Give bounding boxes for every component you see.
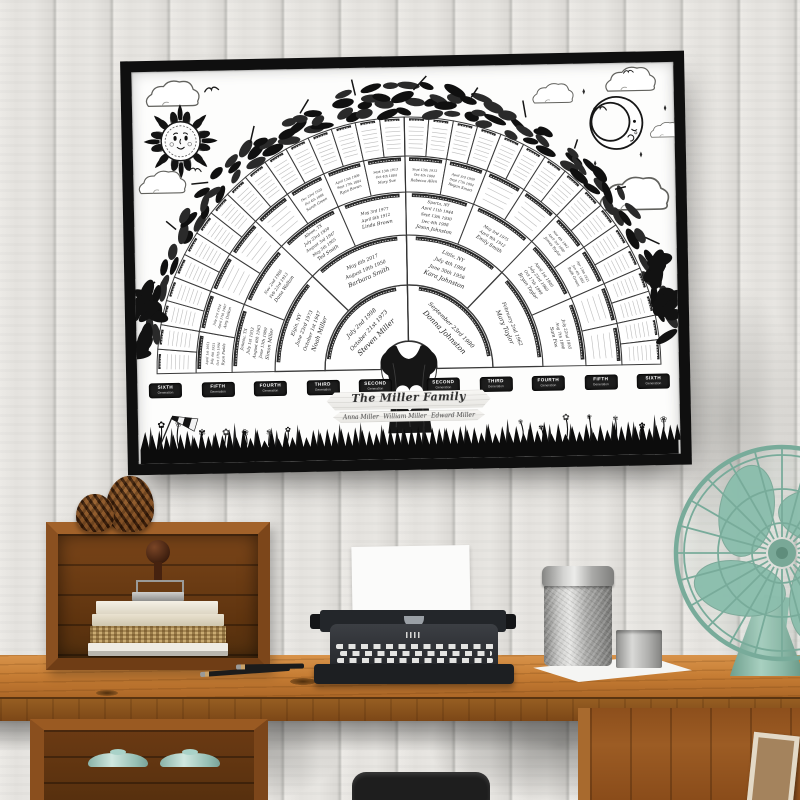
rubber-stamp-handle [146, 540, 170, 564]
badge-sublabel: Generation [307, 388, 339, 392]
flower-icon: ❀ [660, 415, 668, 425]
badge-sublabel: Generation [254, 389, 286, 393]
poster-frame: Steven MillerOctober 21st 1973July 2nd 1… [120, 51, 692, 476]
fan-cell [380, 117, 405, 157]
flower-icon: ❀ [586, 414, 591, 421]
under-desk-cabinet [30, 719, 268, 800]
wood-knot [290, 678, 316, 685]
cloud-icon [533, 83, 574, 103]
star-icon [582, 89, 585, 95]
typewriter-base [314, 664, 514, 684]
typewriter-keys [337, 658, 493, 663]
flower-icon: ❀ [241, 428, 249, 438]
child-name: Anna Miller [343, 411, 379, 423]
flower-icon: ✾ [198, 428, 206, 438]
badge-sublabel: Generation [149, 391, 181, 395]
desk-fan-cage [662, 441, 800, 681]
badge-sublabel: Generation [637, 381, 669, 385]
stool [352, 772, 490, 800]
leaning-picture-frame [746, 732, 800, 800]
badge-sublabel: Generation [585, 382, 617, 386]
mint-jar [162, 766, 218, 800]
fan-cell [582, 323, 622, 365]
rubber-stamp-stem [154, 562, 162, 582]
room-scene: Steven MillerOctober 21st 1973July 2nd 1… [0, 0, 800, 800]
generation-badge: FOURTHGeneration [254, 381, 286, 396]
framed-poster: Steven MillerOctober 21st 1973July 2nd 1… [120, 51, 692, 476]
flower-icon: ✾ [613, 415, 619, 423]
book [90, 626, 226, 643]
badge-sublabel: Generation [427, 385, 459, 389]
flower-icon: ✿ [562, 413, 570, 423]
badge-sublabel: Generation [202, 390, 234, 394]
fan-cell: Mary SueOct 4th 1884Sept 13th 1913 [363, 156, 405, 196]
book [88, 643, 228, 656]
flower-icon: ✾ [266, 427, 273, 437]
flower-icon: ✿ [285, 425, 291, 434]
generation-badge: FIFTHGeneration [585, 375, 617, 390]
pine-cone-large [106, 476, 154, 532]
bird-icon [189, 168, 201, 172]
generation-badge: FIFTHGeneration [202, 382, 234, 397]
badge-sublabel: Generation [480, 384, 512, 388]
typewriter-keys [340, 651, 492, 656]
fan-cell [620, 339, 660, 364]
flower-icon: ✿ [222, 427, 230, 438]
book [92, 614, 224, 626]
wood-knot [96, 690, 118, 696]
metal-cup [616, 630, 662, 668]
generation-badge: SIXTHGeneration [149, 383, 181, 398]
generation-badge: SIXTHGeneration [637, 374, 669, 389]
generation-badge: FOURTHGeneration [532, 376, 564, 391]
typewriter-logo [406, 632, 422, 638]
sun-icon [143, 104, 218, 179]
flower-icon: ❀ [518, 419, 523, 426]
star-icon [640, 151, 643, 157]
family-tree-poster: Steven MillerOctober 21st 1973July 2nd 1… [131, 62, 680, 464]
fan-hub-cap [776, 547, 788, 559]
child-name: Edward Miller [431, 409, 475, 421]
bird-icon [204, 86, 218, 91]
poster-title: The Miller Family [326, 389, 490, 410]
fan-chart: Steven MillerOctober 21st 1973July 2nd 1… [152, 112, 661, 374]
flower-icon: ✾ [538, 424, 544, 432]
cloud-icon [139, 171, 186, 194]
typewriter-keys [336, 644, 494, 649]
moon-icon [586, 92, 647, 153]
metal-canister [544, 584, 612, 666]
rubber-stamp-base [132, 592, 184, 601]
pine-cone-small [76, 494, 114, 532]
star-icon [664, 105, 667, 111]
cloud-icon [650, 122, 680, 137]
mint-jar [90, 766, 146, 800]
book [96, 601, 218, 614]
child-name: William Miller [383, 410, 426, 422]
badge-sublabel: Generation [532, 383, 564, 387]
metal-canister-lid [542, 566, 614, 586]
family-name-plate: The Miller Family Anna Miller William Mi… [326, 389, 491, 423]
flower-icon: ✿ [157, 420, 165, 431]
badge-sublabel: Generation [359, 387, 391, 391]
cloud-icon [146, 81, 199, 107]
flower-icon: ✿ [639, 420, 646, 430]
